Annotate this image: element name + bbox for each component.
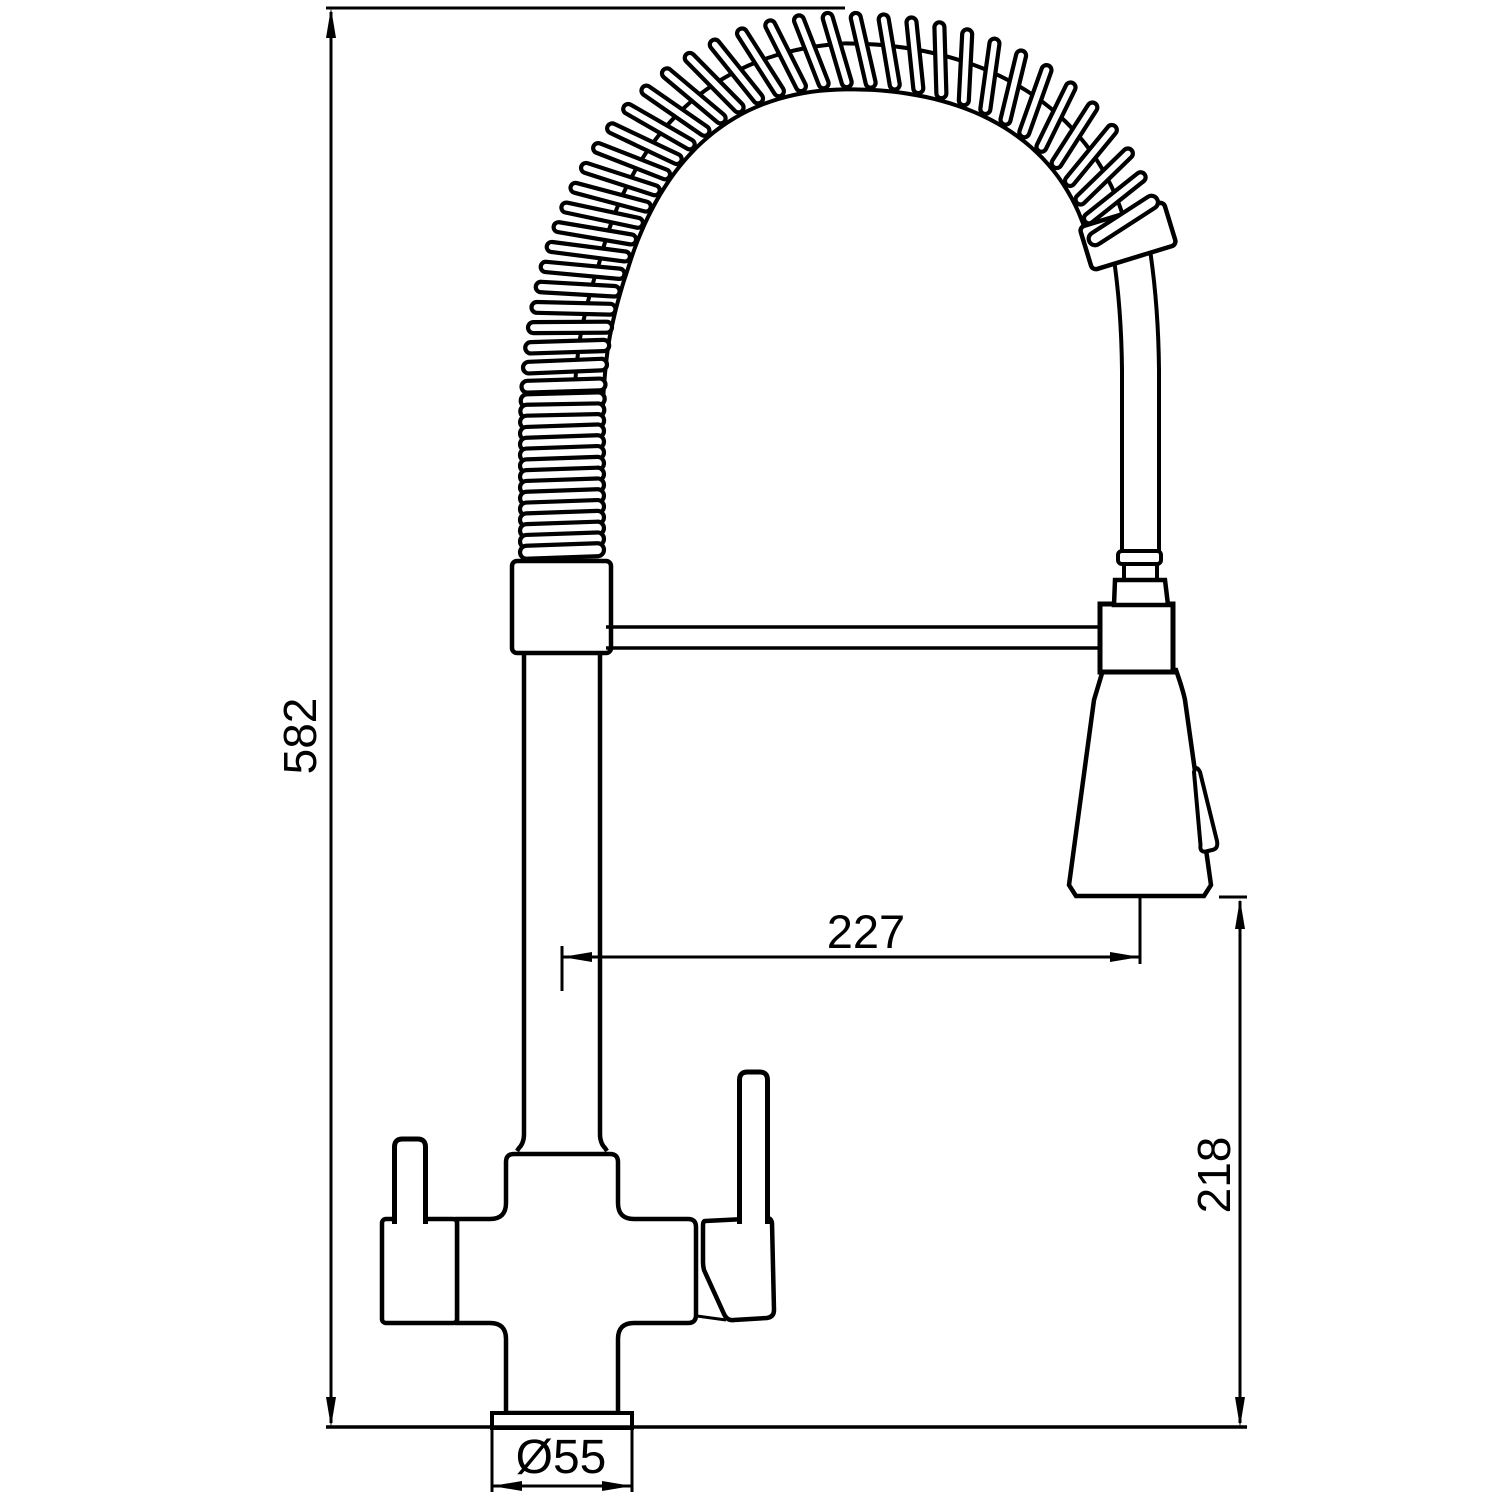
svg-text:Ø55: Ø55	[516, 1431, 607, 1484]
svg-text:227: 227	[827, 905, 905, 958]
svg-text:582: 582	[274, 698, 326, 775]
svg-text:218: 218	[1188, 1137, 1240, 1214]
